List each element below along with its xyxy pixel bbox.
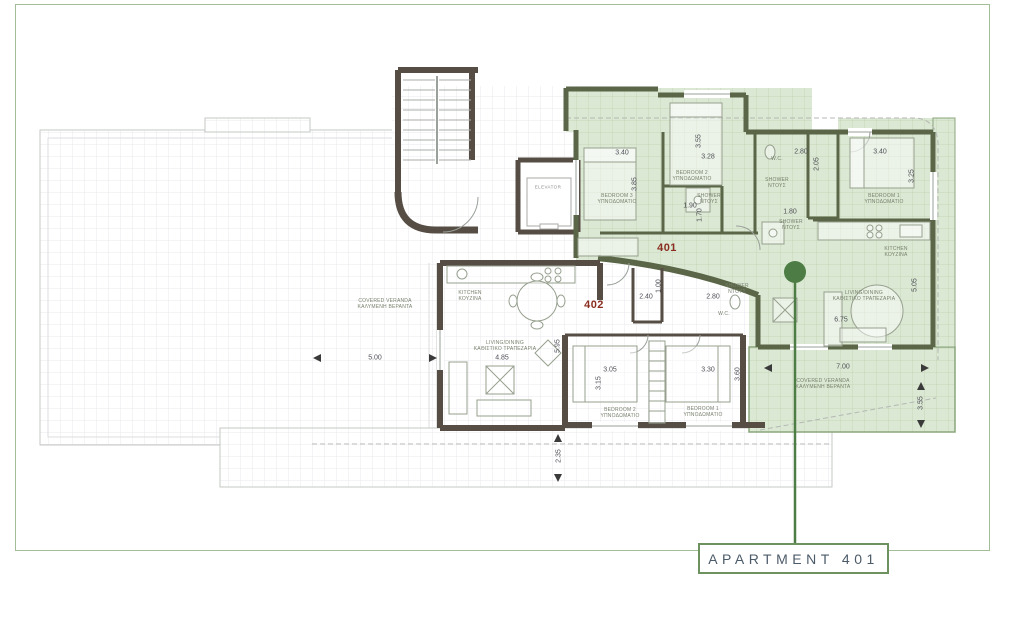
- apartment-401-callout[interactable]: APARTMENT 401: [698, 543, 889, 574]
- page-frame-border: [15, 4, 990, 551]
- apartment-401-callout-label: APARTMENT 401: [708, 551, 879, 567]
- floorplan-page: 3.403.853.553.281.901.702.802.053.403.25…: [0, 0, 1024, 619]
